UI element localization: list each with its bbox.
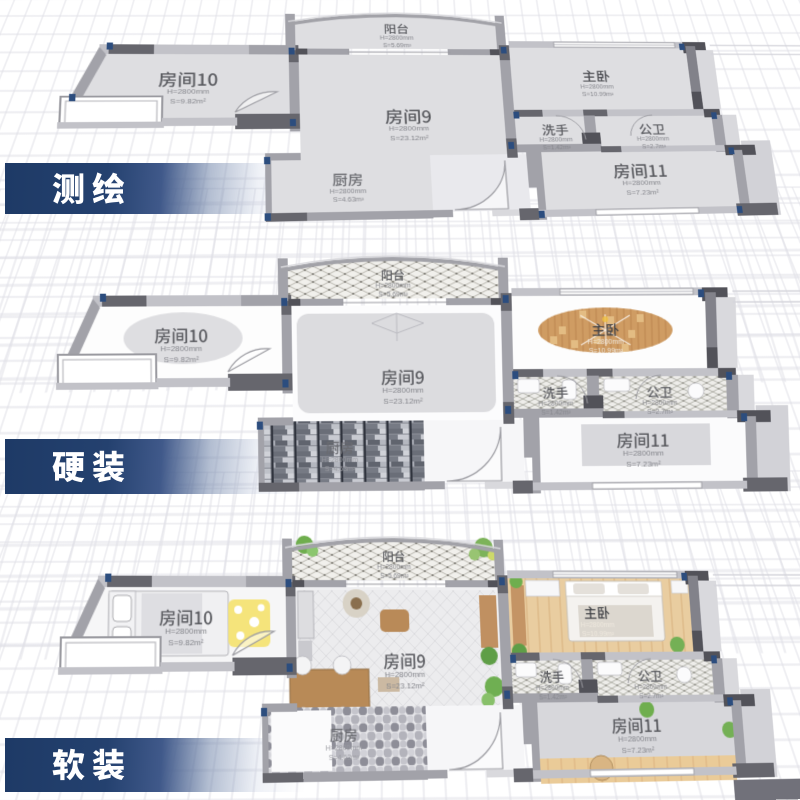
svg-text:H=2800mm: H=2800mm [580, 84, 614, 90]
svg-text:H=2800mm: H=2800mm [382, 386, 424, 395]
svg-text:H=2800mm: H=2800mm [637, 136, 670, 143]
svg-text:S=23.12m²: S=23.12m² [390, 133, 429, 142]
svg-text:H=2800mm: H=2800mm [642, 400, 677, 407]
svg-text:H=2800mm: H=2800mm [536, 685, 570, 693]
svg-text:H=2800mm: H=2800mm [167, 87, 210, 95]
svg-text:H=2800mm: H=2800mm [165, 626, 207, 636]
svg-text:H=2800mm: H=2800mm [588, 339, 624, 346]
svg-text:H=2800mm: H=2800mm [539, 137, 573, 144]
svg-text:S=9.82m²: S=9.82m² [164, 355, 200, 364]
svg-text:H=2800mm: H=2800mm [375, 283, 411, 290]
svg-text:S=2.7m²: S=2.7m² [647, 409, 673, 416]
svg-text:H=2800mm: H=2800mm [326, 745, 363, 753]
svg-text:S=1.42m²: S=1.42m² [543, 145, 572, 152]
svg-text:S=9.82m²: S=9.82m² [168, 638, 204, 648]
svg-text:S=10.99m²: S=10.99m² [589, 348, 624, 355]
svg-text:S=4.63m²: S=4.63m² [325, 466, 356, 473]
svg-text:S=23.12m²: S=23.12m² [386, 681, 425, 691]
svg-text:H=2800mm: H=2800mm [618, 734, 658, 744]
svg-text:S=9.82m²: S=9.82m² [170, 97, 206, 105]
svg-text:S=2.7m²: S=2.7m² [642, 144, 667, 150]
svg-text:S=7.23m²: S=7.23m² [626, 188, 660, 197]
svg-text:S=5.69m²: S=5.69m² [383, 43, 412, 49]
svg-text:H=2800mm: H=2800mm [377, 564, 411, 571]
svg-text:S=5.69m²: S=5.69m² [380, 573, 409, 580]
svg-text:S=10.99m²: S=10.99m² [582, 631, 615, 638]
svg-text:H=2800mm: H=2800mm [160, 344, 202, 353]
svg-text:S=7.23m²: S=7.23m² [621, 745, 655, 755]
svg-text:S=2.7m²: S=2.7m² [639, 693, 664, 700]
svg-text:S=1.42m²: S=1.42m² [539, 694, 568, 702]
svg-text:H=2800mm: H=2800mm [581, 622, 615, 629]
svg-text:S=4.63m²: S=4.63m² [329, 755, 360, 763]
svg-text:H=2800mm: H=2800mm [623, 449, 665, 458]
svg-text:H=2800mm: H=2800mm [538, 401, 574, 408]
svg-text:H=2800mm: H=2800mm [322, 457, 359, 464]
svg-text:H=2800mm: H=2800mm [622, 178, 661, 187]
svg-text:H=2800mm: H=2800mm [330, 188, 367, 195]
svg-text:H=2800mm: H=2800mm [388, 124, 429, 133]
svg-text:S=23.12m²: S=23.12m² [383, 396, 423, 405]
svg-text:S=10.99m²: S=10.99m² [582, 92, 615, 98]
svg-text:S=4.63m²: S=4.63m² [333, 197, 365, 204]
svg-text:H=2800mm: H=2800mm [380, 35, 414, 41]
svg-text:S=1.42m²: S=1.42m² [541, 410, 571, 417]
svg-text:S=5.69m²: S=5.69m² [378, 292, 408, 299]
svg-text:H=2800mm: H=2800mm [385, 670, 426, 680]
svg-text:S=7.23m²: S=7.23m² [626, 459, 661, 468]
svg-text:H=2800mm: H=2800mm [634, 684, 668, 692]
